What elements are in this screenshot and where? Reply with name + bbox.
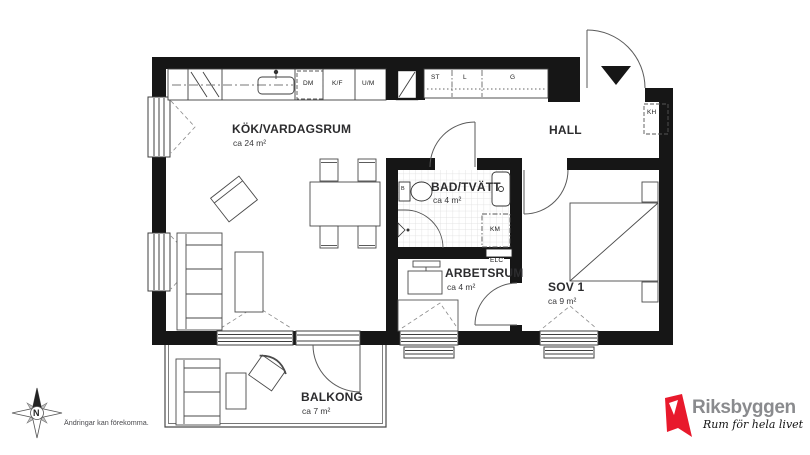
bathroom-door	[430, 122, 475, 167]
livingroom-furniture	[177, 159, 380, 330]
elc-cabinet	[486, 249, 512, 257]
optional-bed-outline	[398, 300, 458, 331]
room-area-balcony: ca 7 m²	[302, 407, 330, 416]
dining-chair	[320, 226, 338, 248]
window-left-1	[148, 97, 195, 157]
sofa	[177, 233, 222, 330]
room-area-bath: ca 4 m²	[433, 196, 461, 205]
disclaimer-text: Ändringar kan förekomma.	[64, 419, 149, 426]
balcony-door	[313, 345, 360, 392]
label-coat-rack: KH	[647, 110, 656, 117]
room-area-workroom: ca 4 m²	[447, 283, 475, 292]
label-dishwasher: DM	[303, 81, 314, 88]
room-label-bedroom: SOV 1	[548, 281, 584, 293]
room-area-bedroom: ca 9 m²	[548, 297, 576, 306]
room-label-workroom: ARBETSRUM	[445, 267, 523, 279]
dining-chair	[358, 226, 376, 248]
label-oven-micro: U/M	[362, 81, 375, 88]
desk	[408, 261, 442, 294]
compass-north-label: N	[33, 409, 40, 418]
label-fridge-freezer: K/F	[332, 81, 343, 88]
brand-tagline: Rum för hela livet	[703, 419, 803, 430]
label-electrical-cabinet: ELC	[489, 258, 504, 265]
workroom-door	[475, 283, 517, 325]
balcony-furniture	[176, 351, 289, 425]
outdoor-chair	[247, 351, 289, 392]
label-cleaning-closet: ST	[431, 75, 440, 82]
outdoor-table	[226, 373, 246, 409]
room-label-bath: BAD/TVÄTT	[431, 181, 501, 193]
window-bedroom	[540, 306, 598, 358]
double-bed	[570, 203, 658, 281]
room-label-kitchen-living: KÖK/VARDAGSRUM	[232, 123, 351, 135]
bedroom-door	[524, 170, 568, 214]
shaft	[386, 69, 425, 100]
label-toilet: B	[401, 187, 405, 193]
dining-table	[310, 182, 380, 226]
nightstand	[642, 282, 658, 302]
wardrobe-row	[424, 69, 548, 98]
window-workroom	[400, 303, 458, 358]
room-label-hall: HALL	[549, 124, 582, 136]
coffee-table	[235, 252, 263, 312]
dining-set	[310, 159, 380, 248]
entrance-marker-icon	[601, 66, 631, 85]
floorplan-drawing	[0, 0, 810, 455]
label-washing-machine: KM	[490, 227, 500, 234]
label-wardrobe: G	[510, 75, 515, 82]
nightstand	[642, 182, 658, 202]
brand-name: Riksbyggen	[692, 398, 796, 417]
room-area-kitchen-living: ca 24 m²	[233, 139, 266, 148]
balcony-door-glazing	[296, 331, 360, 345]
room-label-balcony: BALKONG	[301, 391, 363, 403]
kitchen-counter	[168, 69, 386, 100]
riksbyggen-logo-icon	[665, 394, 692, 437]
outdoor-sofa	[176, 359, 220, 425]
floorplan-page: KÖK/VARDAGSRUM ca 24 m² HALL BAD/TVÄTT c…	[0, 0, 810, 455]
armchair	[211, 176, 258, 222]
label-linen-closet: L	[463, 75, 467, 82]
